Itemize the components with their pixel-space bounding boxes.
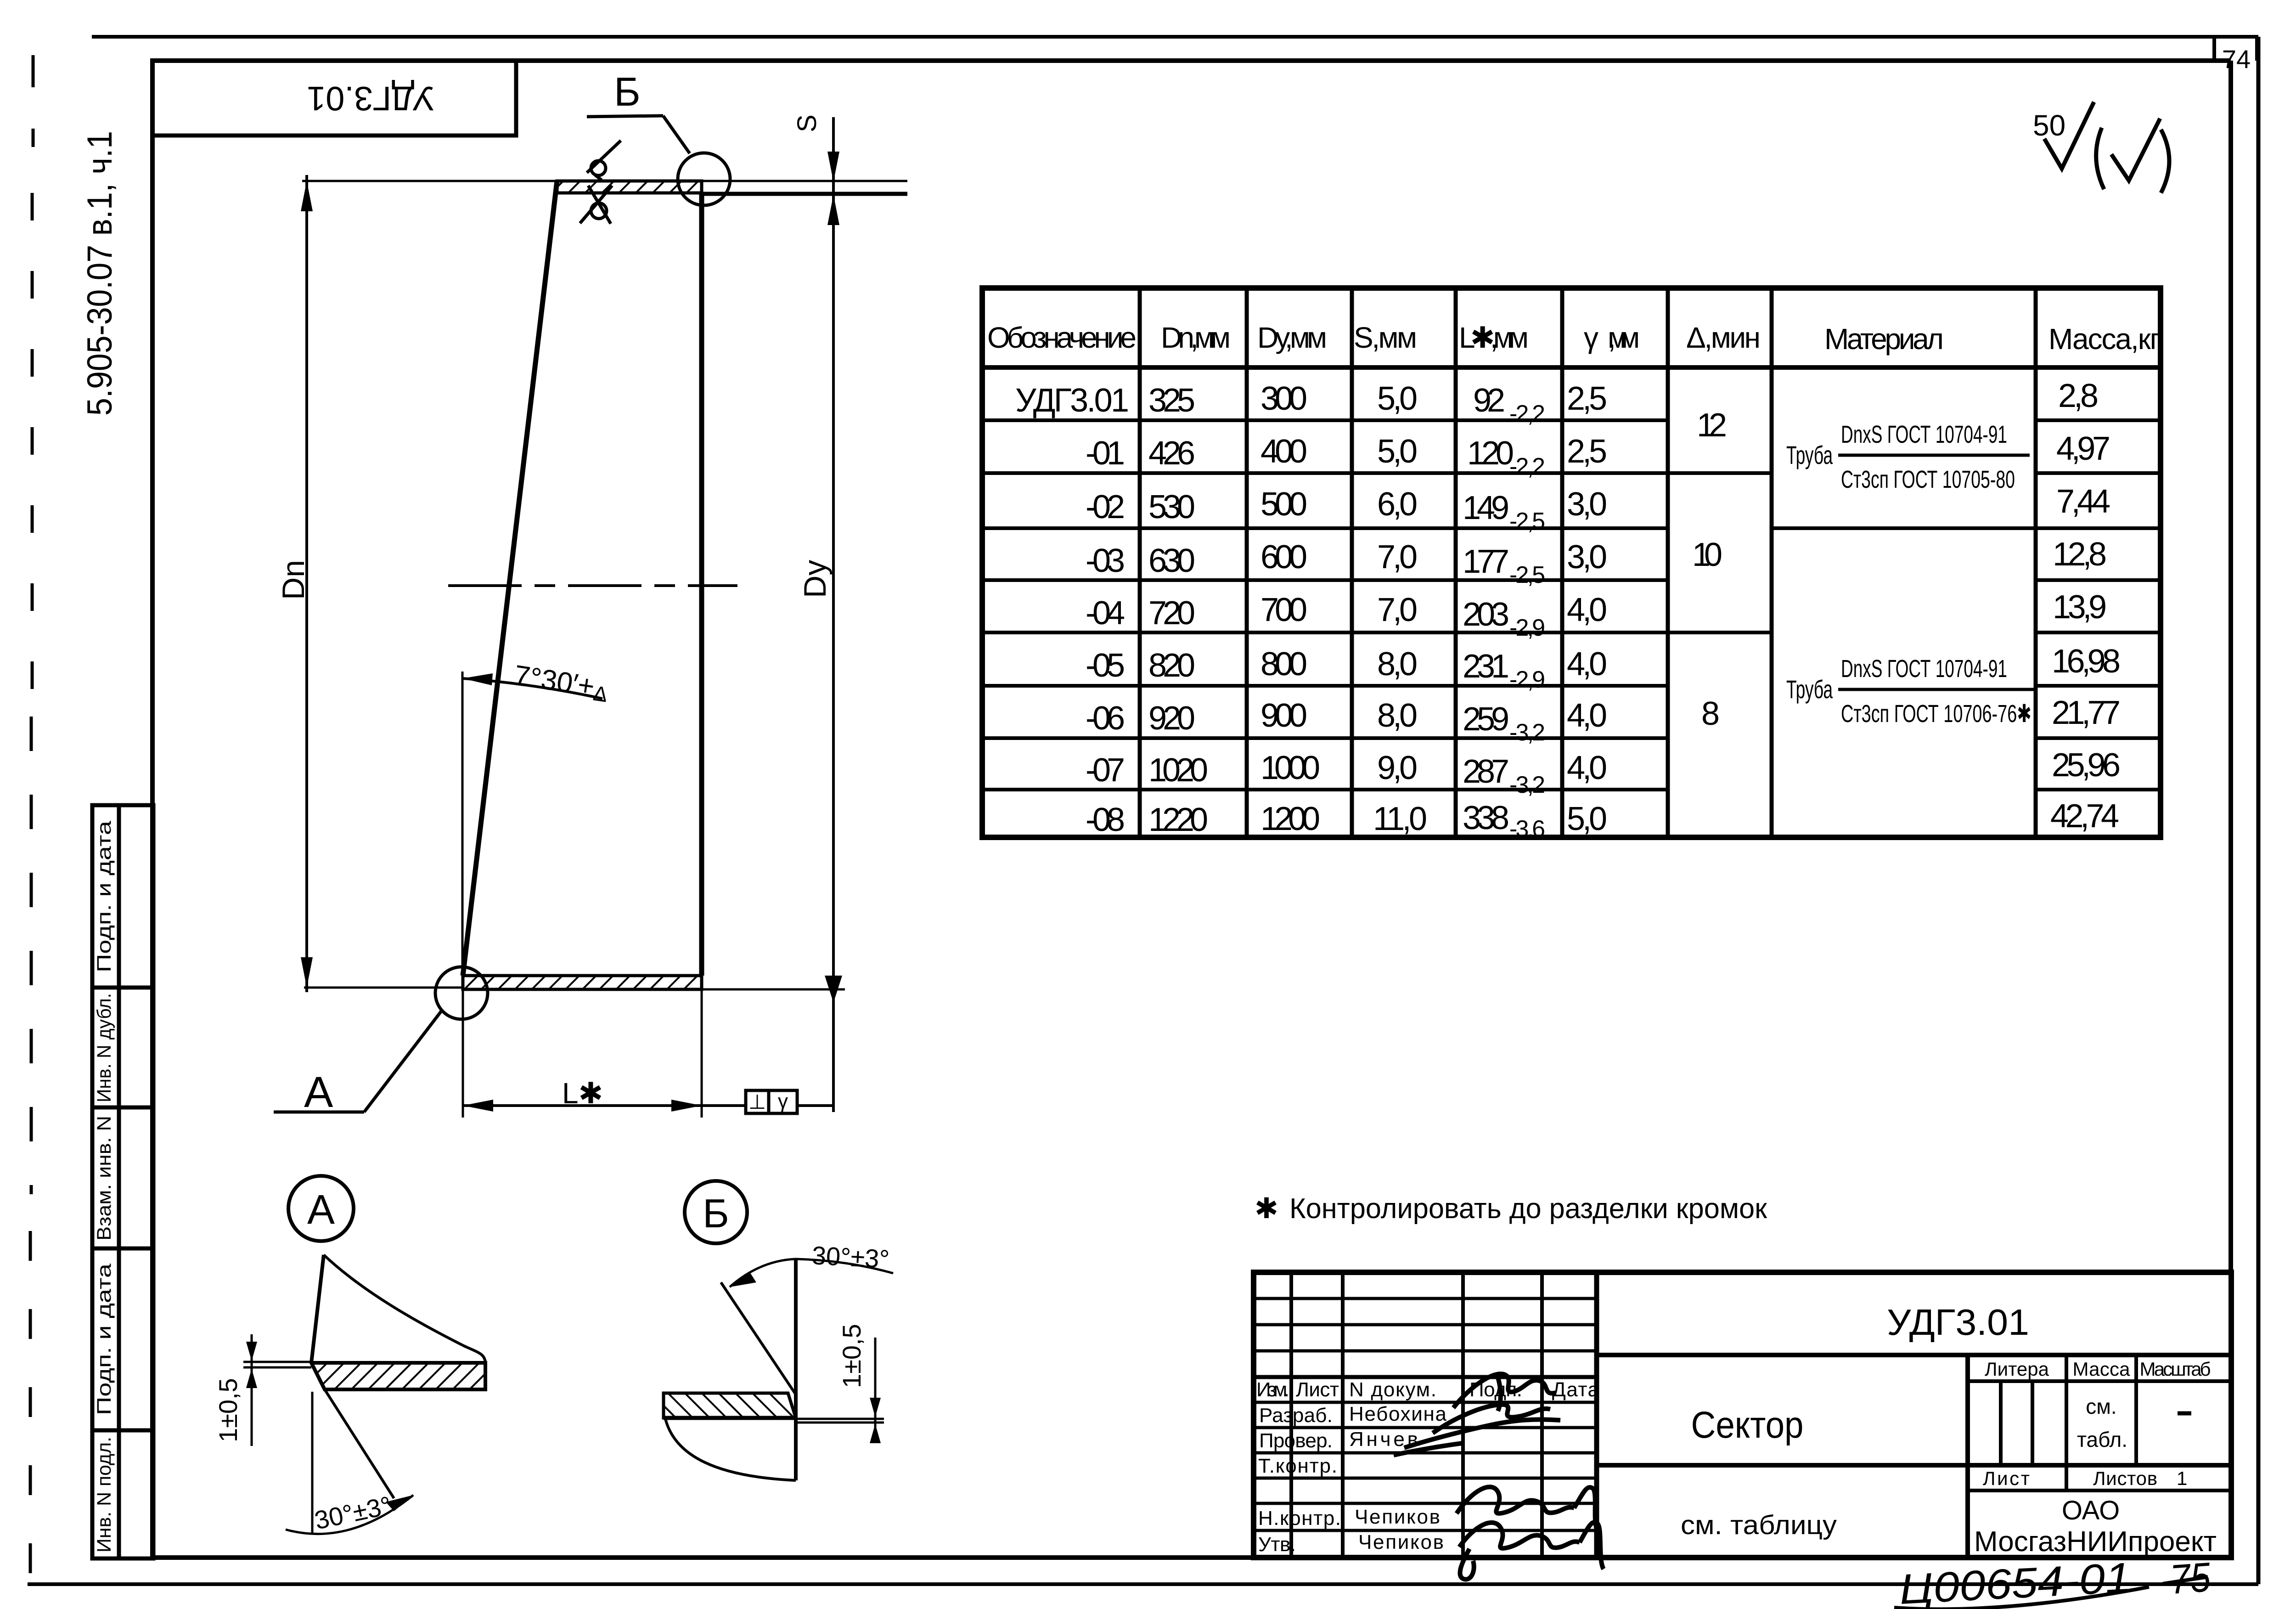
- svg-text:см. таблицу: см. таблицу: [1681, 1510, 1837, 1540]
- svg-text:820: 820: [1148, 647, 1195, 684]
- svg-text:УДГ3.01: УДГ3.01: [1015, 382, 1129, 419]
- svg-text:630: 630: [1148, 542, 1195, 579]
- svg-text:2,8: 2,8: [2058, 378, 2099, 414]
- svg-text:Обозначение: Обозначение: [987, 321, 1137, 354]
- svg-text:3,0: 3,0: [1567, 539, 1607, 576]
- svg-text:21,77: 21,77: [2052, 694, 2121, 731]
- svg-text:-2,2: -2,2: [1509, 453, 1545, 480]
- svg-text:Масштаб: Масштаб: [2140, 1358, 2211, 1380]
- svg-text:А: А: [304, 1068, 333, 1117]
- svg-text:1220: 1220: [1148, 802, 1208, 838]
- svg-text:50: 50: [2033, 109, 2065, 142]
- svg-text:S: S: [792, 114, 822, 132]
- svg-text:8,0: 8,0: [1377, 646, 1418, 683]
- svg-text:900: 900: [1261, 697, 1307, 734]
- svg-text:1200: 1200: [1261, 801, 1320, 837]
- svg-text:γ: γ: [778, 1090, 788, 1112]
- svg-text:530: 530: [1148, 489, 1195, 525]
- svg-text:1: 1: [2177, 1468, 2187, 1489]
- svg-text:338: 338: [1463, 800, 1509, 836]
- svg-text:30°±3°: 30°±3°: [811, 1241, 890, 1274]
- svg-text:13,9: 13,9: [2053, 589, 2107, 626]
- svg-text:25,96: 25,96: [2052, 747, 2121, 784]
- svg-text:Листов: Листов: [2093, 1468, 2157, 1489]
- svg-text:8: 8: [1701, 695, 1720, 732]
- svg-text:500: 500: [1261, 486, 1307, 523]
- svg-text:Н.контр.: Н.контр.: [1258, 1507, 1341, 1530]
- svg-text:Подп. и дата: Подп. и дата: [93, 1264, 115, 1415]
- svg-text:800: 800: [1261, 646, 1307, 683]
- svg-text:-03: -03: [1086, 542, 1125, 579]
- svg-text:Т.контр.: Т.контр.: [1258, 1455, 1337, 1477]
- svg-text:259: 259: [1463, 701, 1509, 738]
- svg-text:γ: γ: [1584, 321, 1598, 354]
- svg-text:1±0,5: 1±0,5: [214, 1378, 242, 1442]
- svg-text:5,0: 5,0: [1377, 380, 1418, 417]
- svg-text:Инв. N подл.: Инв. N подл.: [93, 1437, 115, 1553]
- svg-text:720: 720: [1148, 595, 1195, 632]
- svg-text:S,мм: S,мм: [1354, 321, 1417, 354]
- svg-text:400: 400: [1261, 433, 1307, 470]
- svg-text:600: 600: [1261, 539, 1307, 576]
- svg-text:4,0: 4,0: [1567, 750, 1607, 786]
- svg-text:1020: 1020: [1148, 752, 1208, 789]
- svg-text:N докум.: N докум.: [1349, 1378, 1436, 1401]
- svg-text:ОАО: ОАО: [2062, 1496, 2120, 1525]
- svg-text:УДГ3.01: УДГ3.01: [1887, 1302, 2029, 1343]
- svg-text:Б: Б: [614, 69, 641, 114]
- svg-text:-3,2: -3,2: [1509, 772, 1545, 798]
- svg-text:10: 10: [1692, 536, 1722, 573]
- svg-text:426: 426: [1148, 435, 1195, 472]
- svg-text:16,98: 16,98: [2052, 643, 2121, 680]
- svg-text:-02: -02: [1086, 489, 1125, 525]
- svg-text:325: 325: [1148, 382, 1195, 419]
- svg-text:УДГ3.01: УДГ3.01: [307, 79, 434, 118]
- svg-text:-08: -08: [1086, 802, 1125, 838]
- svg-text:5,0: 5,0: [1377, 433, 1418, 470]
- svg-text:DnxS ГОСТ 10704-91: DnxS ГОСТ 10704-91: [1841, 655, 2007, 683]
- svg-text:2,5: 2,5: [1567, 380, 1607, 417]
- svg-text:1000: 1000: [1261, 750, 1320, 786]
- svg-text:МосгазНИИпроект: МосгазНИИпроект: [1974, 1526, 2217, 1558]
- svg-text:-2,5: -2,5: [1509, 562, 1545, 588]
- svg-text:4,97: 4,97: [2056, 430, 2110, 467]
- svg-text:4,0: 4,0: [1567, 646, 1607, 683]
- svg-text:11,0: 11,0: [1373, 801, 1427, 837]
- svg-text:-04: -04: [1086, 595, 1125, 632]
- svg-text:1±0,5: 1±0,5: [837, 1324, 866, 1388]
- svg-text:92: 92: [1473, 382, 1505, 419]
- svg-text:L✱,мм: L✱,мм: [1459, 321, 1529, 354]
- svg-text:920: 920: [1148, 700, 1195, 737]
- svg-text:231: 231: [1463, 648, 1509, 685]
- svg-text:700: 700: [1261, 592, 1307, 628]
- svg-text:5,0: 5,0: [1567, 801, 1607, 837]
- svg-text:Инв. N дубл.: Инв. N дубл.: [93, 993, 115, 1102]
- svg-text:12,8: 12,8: [2053, 536, 2107, 573]
- svg-text:Dn,мм: Dn,мм: [1161, 321, 1231, 354]
- svg-text:Dy,мм: Dy,мм: [1257, 321, 1327, 354]
- svg-text:Чепиков: Чепиков: [1355, 1506, 1440, 1528]
- svg-text:Дата: Дата: [1552, 1378, 1599, 1401]
- svg-text:42,74: 42,74: [2050, 798, 2119, 835]
- svg-text:Масса,кг: Масса,кг: [2048, 322, 2161, 356]
- svg-text:Сектор: Сектор: [1691, 1404, 1804, 1446]
- svg-text:-2,9: -2,9: [1509, 666, 1545, 693]
- svg-text:8,0: 8,0: [1377, 697, 1418, 734]
- svg-text:-01: -01: [1086, 435, 1125, 472]
- svg-text:Подп. и дата: Подп. и дата: [93, 821, 115, 972]
- svg-text:Литера: Литера: [1985, 1358, 2049, 1380]
- svg-text:177: 177: [1463, 543, 1509, 580]
- svg-text:Dn: Dn: [276, 560, 311, 600]
- svg-text:Ст3сп ГОСТ 10706-76✱: Ст3сп ГОСТ 10706-76✱: [1841, 700, 2032, 728]
- svg-text:149: 149: [1463, 490, 1509, 526]
- svg-text:Труба: Труба: [1786, 675, 1833, 704]
- svg-text:-3,2: -3,2: [1509, 719, 1545, 746]
- svg-text:табл.: табл.: [2077, 1428, 2127, 1451]
- svg-text:5.905-30.07 в.1, ч.1: 5.905-30.07 в.1, ч.1: [80, 131, 119, 416]
- svg-text:Материал: Материал: [1824, 322, 1944, 356]
- svg-text:Утв.: Утв.: [1258, 1533, 1296, 1556]
- svg-text:7,44: 7,44: [2056, 483, 2110, 520]
- svg-text:-06: -06: [1086, 700, 1125, 737]
- svg-text:Труба: Труба: [1786, 440, 1833, 469]
- svg-text:120: 120: [1467, 435, 1514, 472]
- svg-text:12: 12: [1697, 407, 1727, 444]
- svg-text:Чепиков: Чепиков: [1358, 1531, 1444, 1553]
- svg-text:300: 300: [1261, 380, 1307, 417]
- svg-text:-3,6: -3,6: [1509, 816, 1545, 842]
- svg-text:Dy: Dy: [798, 560, 833, 598]
- svg-text:⊥: ⊥: [748, 1091, 766, 1113]
- svg-text:Б: Б: [703, 1191, 729, 1236]
- svg-text:Ст3сп ГОСТ 10705-80: Ст3сп ГОСТ 10705-80: [1841, 466, 2015, 493]
- svg-text:287: 287: [1463, 753, 1509, 790]
- svg-text:-05: -05: [1086, 647, 1125, 684]
- svg-text:-2,5: -2,5: [1509, 508, 1545, 535]
- svg-text:DnxS ГОСТ 10704-91: DnxS ГОСТ 10704-91: [1841, 421, 2007, 448]
- svg-text:Взам. инв. N: Взам. инв. N: [93, 1116, 115, 1241]
- svg-text:см.: см.: [2086, 1394, 2116, 1418]
- svg-text:-2,2: -2,2: [1509, 401, 1545, 427]
- svg-text:Разраб.: Разраб.: [1259, 1404, 1333, 1427]
- svg-text:Масса: Масса: [2073, 1358, 2131, 1380]
- svg-text:Лист: Лист: [1983, 1468, 2030, 1489]
- svg-text:203: 203: [1463, 596, 1509, 633]
- svg-text:-07: -07: [1086, 752, 1125, 789]
- svg-text:9,0: 9,0: [1377, 750, 1418, 786]
- svg-text:7,0: 7,0: [1377, 592, 1418, 628]
- svg-text:7,0: 7,0: [1377, 539, 1418, 576]
- svg-text:6,0: 6,0: [1377, 486, 1418, 523]
- svg-text:-2,9: -2,9: [1509, 615, 1545, 641]
- svg-text:✱Контролировать до разделки кр: ✱Контролировать до разделки кромок: [1255, 1193, 1767, 1225]
- svg-text:3,0: 3,0: [1567, 486, 1607, 523]
- svg-text:L✱: L✱: [562, 1077, 603, 1110]
- svg-text:Провер.: Провер.: [1259, 1429, 1333, 1452]
- svg-text:Лист: Лист: [1296, 1378, 1339, 1401]
- svg-text:4,0: 4,0: [1567, 592, 1607, 628]
- svg-text:А: А: [307, 1187, 335, 1233]
- svg-text:2,5: 2,5: [1567, 433, 1607, 470]
- svg-text:Δ,мин: Δ,мин: [1686, 321, 1761, 354]
- svg-text:74: 74: [2222, 45, 2251, 73]
- svg-text:,мм: ,мм: [1608, 321, 1640, 354]
- svg-text:Изм.: Изм.: [1256, 1378, 1289, 1401]
- svg-text:4,0: 4,0: [1567, 697, 1607, 734]
